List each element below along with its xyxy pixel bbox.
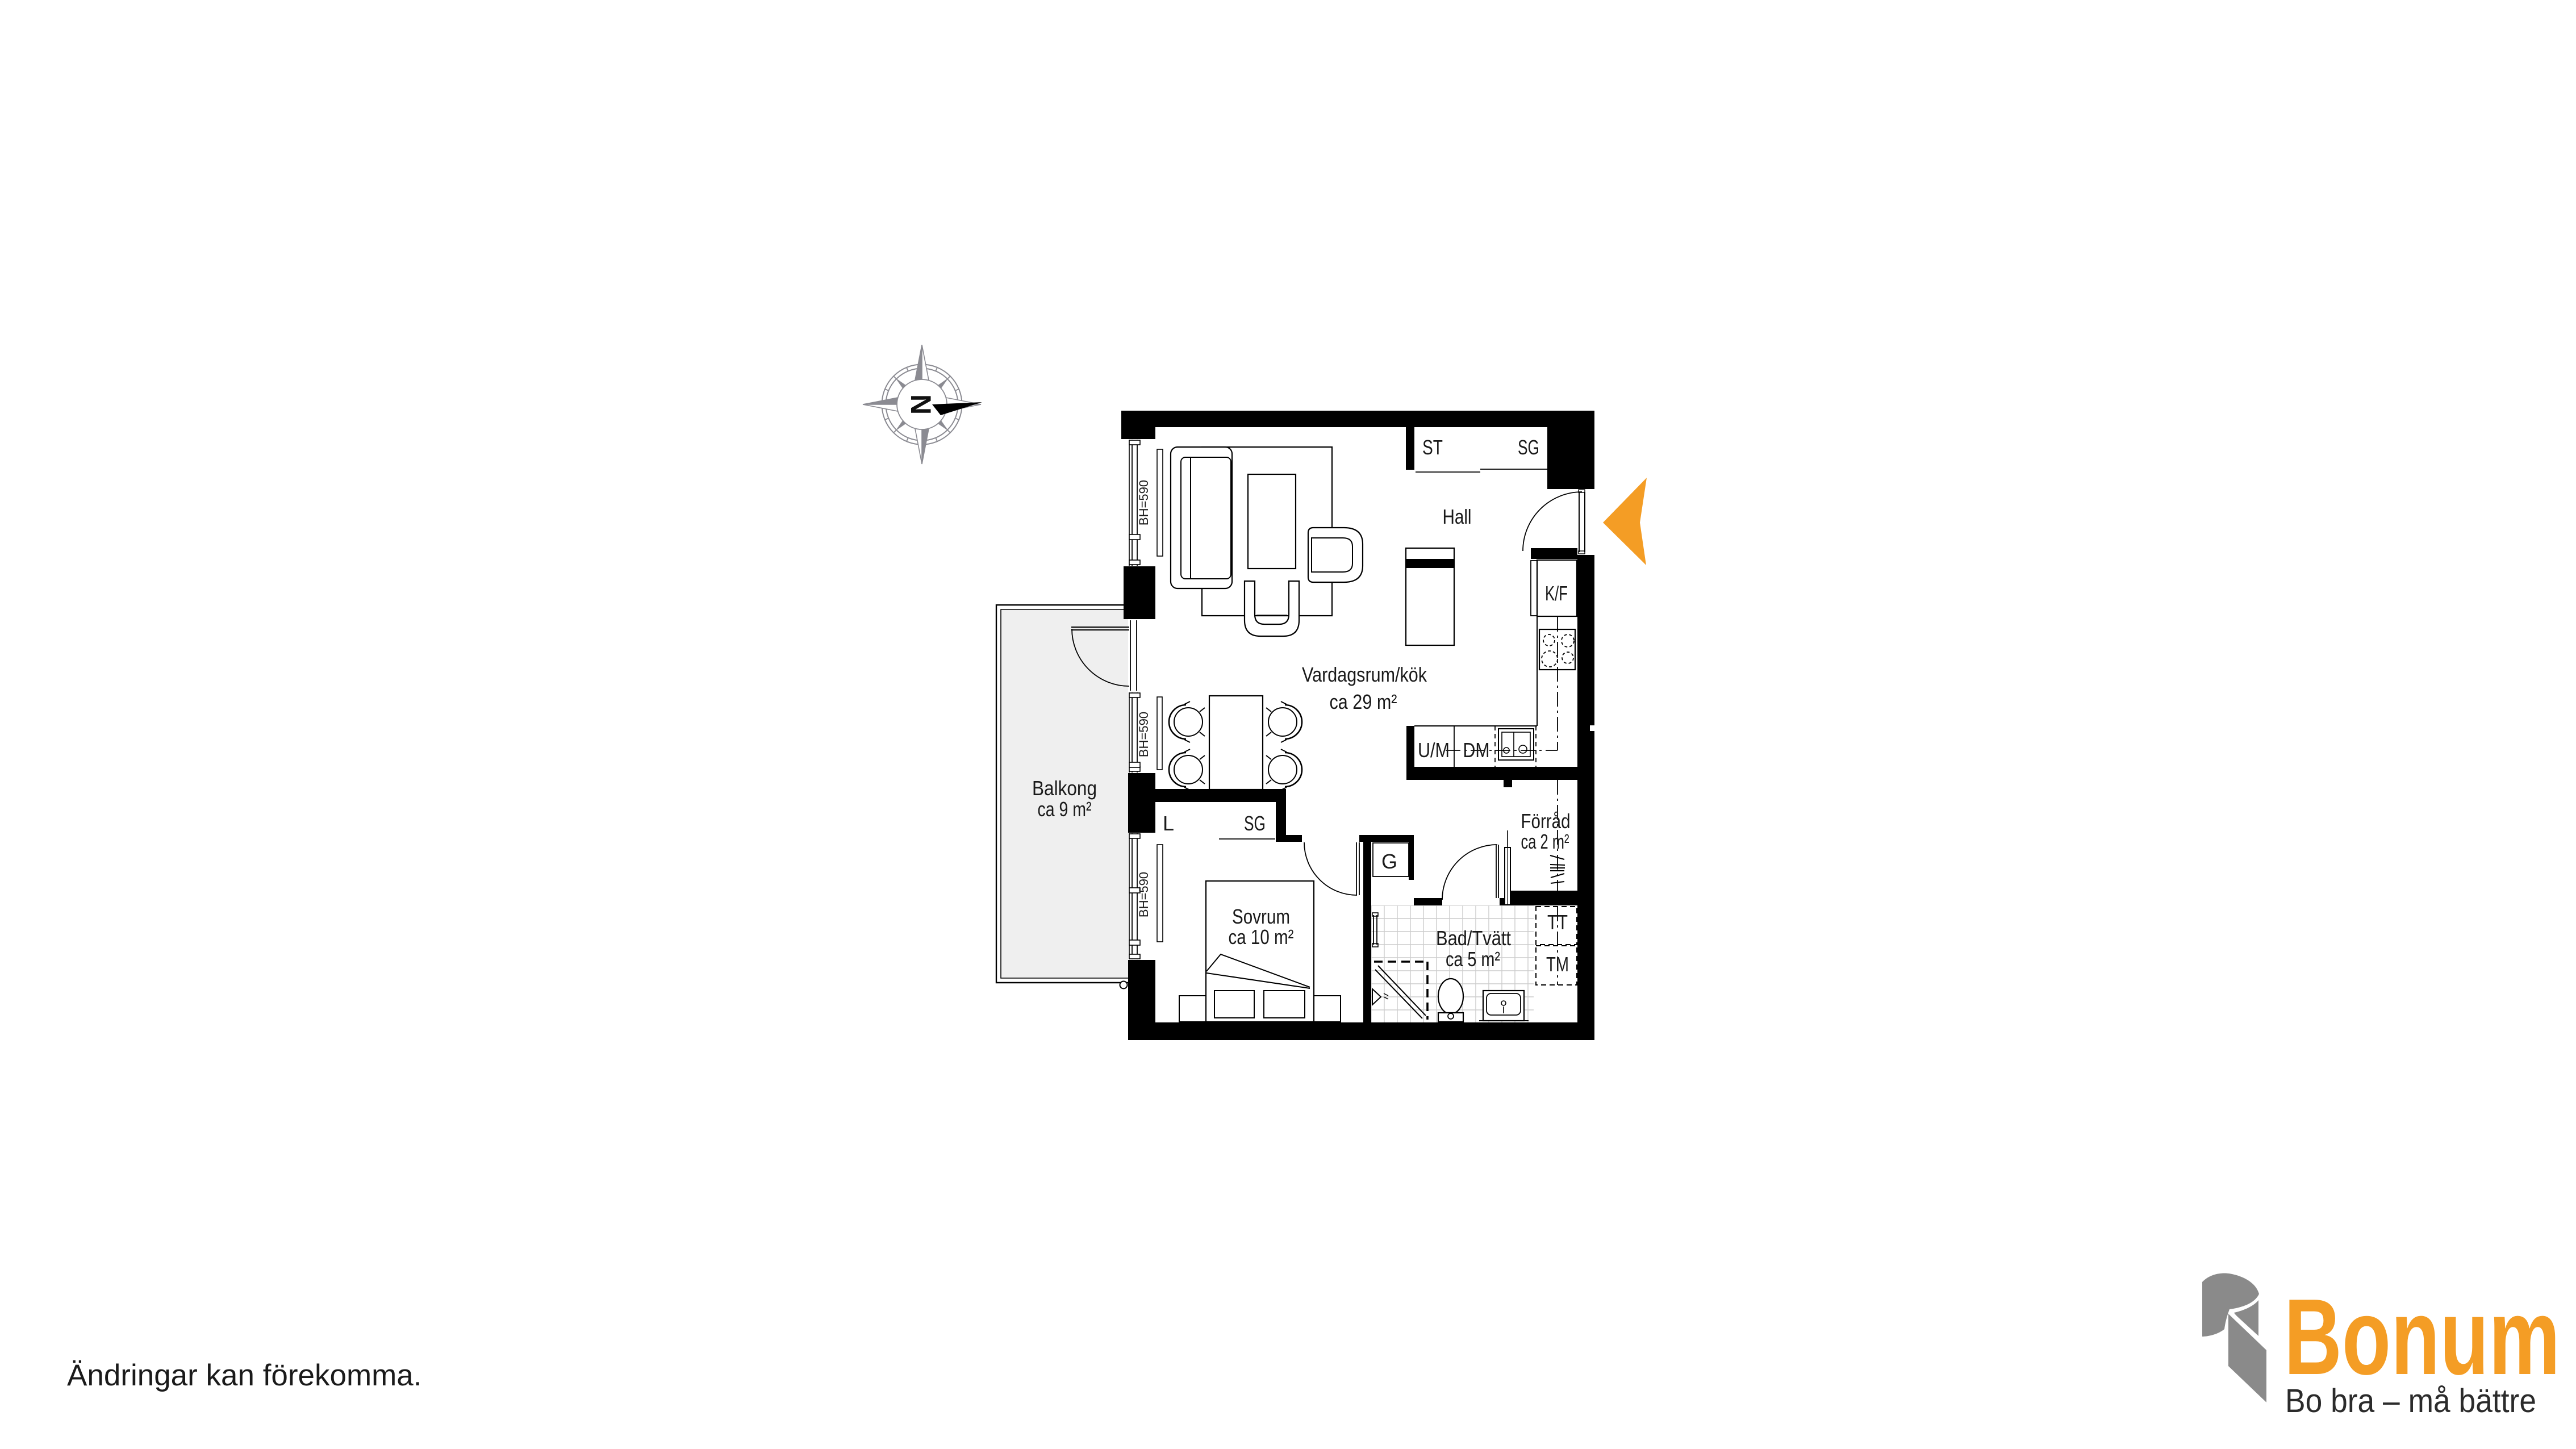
svg-text:BH=590: BH=590 <box>1137 712 1151 757</box>
svg-text:ca 29 m²: ca 29 m² <box>1330 690 1397 713</box>
svg-text:SG: SG <box>1518 436 1539 459</box>
svg-text:U/M: U/M <box>1418 738 1450 762</box>
svg-text:Vardagsrum/kök: Vardagsrum/kök <box>1302 663 1427 686</box>
svg-text:N: N <box>905 394 937 415</box>
svg-text:DM: DM <box>1463 738 1490 762</box>
svg-text:Hall: Hall <box>1443 505 1472 528</box>
svg-text:K/F: K/F <box>1545 582 1568 605</box>
svg-text:Förråd: Förråd <box>1521 809 1571 833</box>
svg-text:Bad/Tvätt: Bad/Tvätt <box>1436 926 1511 950</box>
svg-text:Bonum: Bonum <box>2284 1277 2560 1397</box>
svg-text:Bo bra – må bättre: Bo bra – må bättre <box>2285 1383 2536 1419</box>
svg-text:Ändringar kan förekomma.: Ändringar kan förekomma. <box>67 1359 422 1392</box>
svg-text:Balkong: Balkong <box>1032 776 1097 800</box>
svg-text:ST: ST <box>1422 436 1443 459</box>
svg-text:TT: TT <box>1547 911 1568 934</box>
svg-text:Sovrum: Sovrum <box>1232 905 1290 928</box>
svg-text:G: G <box>1381 850 1397 873</box>
svg-text:SG: SG <box>1244 812 1266 835</box>
svg-text:ca 9 m²: ca 9 m² <box>1038 797 1092 821</box>
svg-text:ca 2 m²: ca 2 m² <box>1521 830 1569 853</box>
svg-text:L: L <box>1163 812 1174 835</box>
svg-text:ca 5 m²: ca 5 m² <box>1446 947 1500 971</box>
svg-text:TM: TM <box>1546 953 1569 976</box>
svg-text:ca 10 m²: ca 10 m² <box>1229 925 1294 949</box>
svg-text:BH=590: BH=590 <box>1137 872 1151 917</box>
svg-text:BH=590: BH=590 <box>1137 480 1151 525</box>
